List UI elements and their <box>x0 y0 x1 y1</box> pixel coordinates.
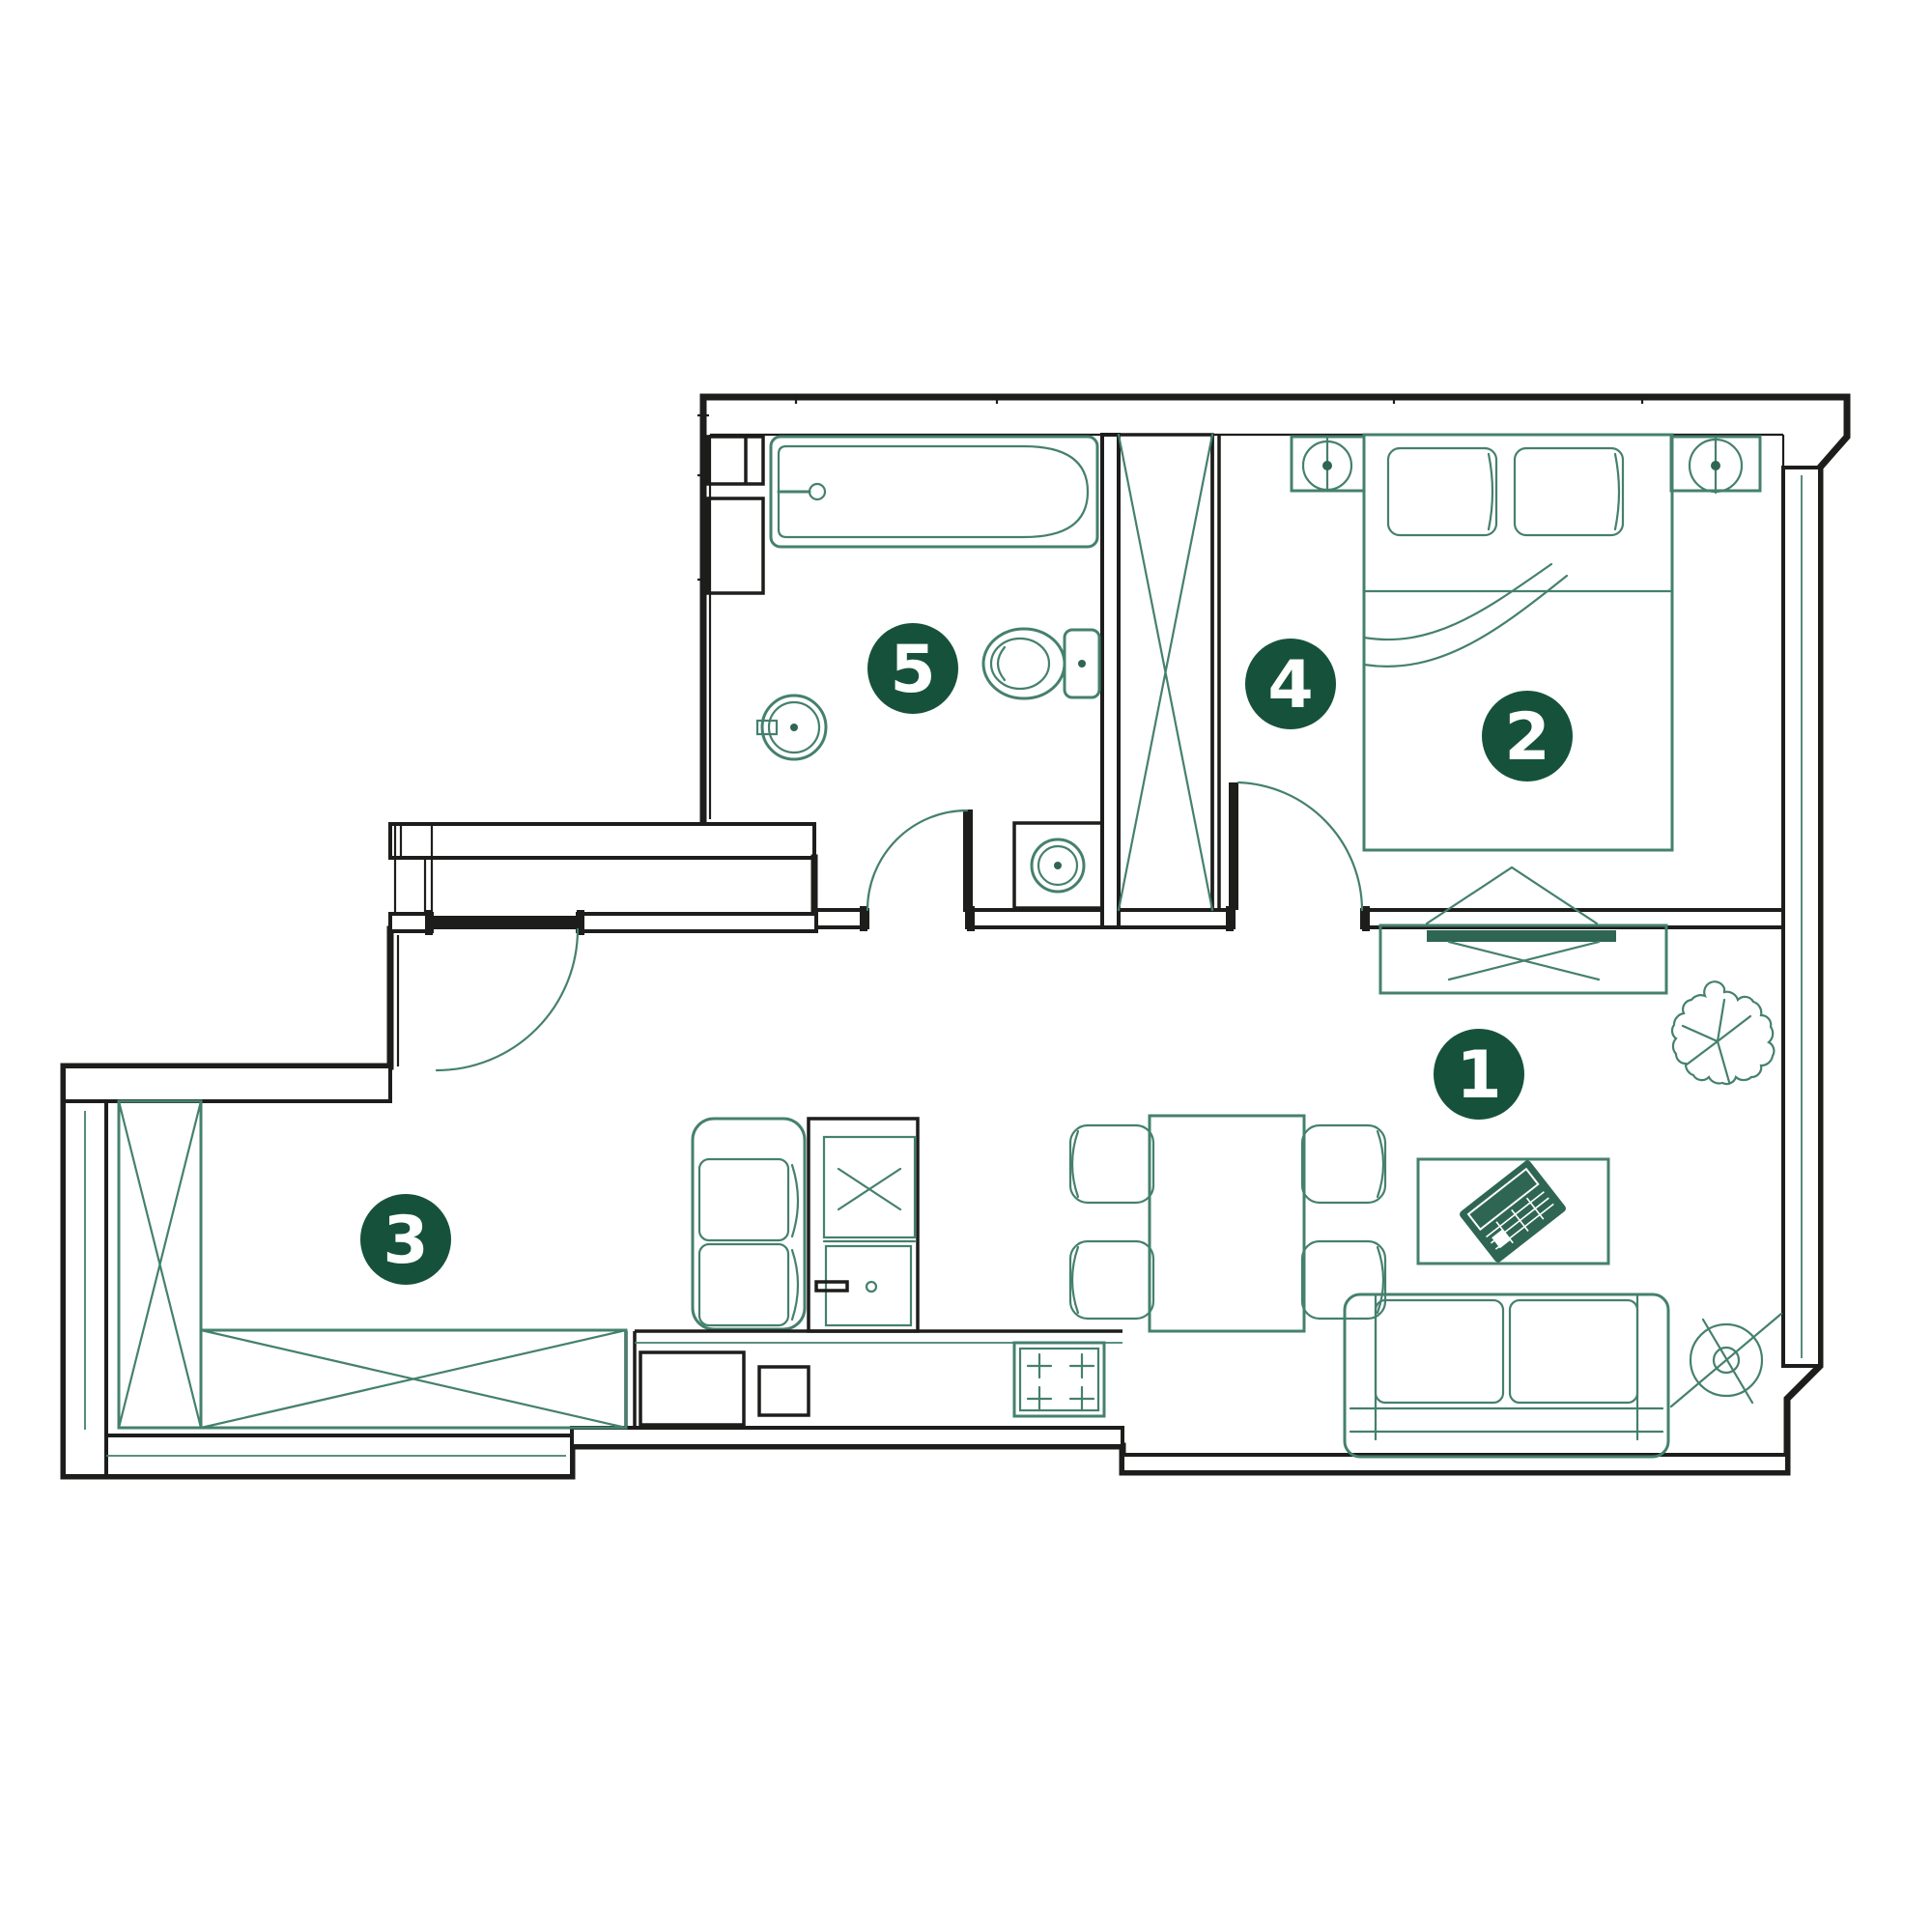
bathtub <box>771 437 1097 547</box>
tv <box>1427 930 1616 942</box>
bedroom-door-swing <box>1238 782 1362 910</box>
tv-stand <box>1380 925 1666 993</box>
bed <box>1364 435 1672 850</box>
floor-plan-page: 1 2 3 4 5 <box>0 0 1932 1932</box>
under-counter-appliance <box>640 1352 744 1425</box>
entry-door-swing <box>437 929 578 1070</box>
sofa <box>1345 1294 1668 1457</box>
room-marker-5: 5 <box>867 623 958 714</box>
bathroom-door-leaf <box>963 810 973 912</box>
hall-wardrobe-horizontal <box>201 1330 626 1428</box>
kitchen <box>635 1116 1385 1425</box>
dining-table <box>1150 1116 1304 1331</box>
room-marker-2: 2 <box>1482 691 1573 781</box>
laptop-icon <box>1458 1159 1567 1264</box>
stove <box>1014 1343 1104 1416</box>
bedroom-door <box>1226 782 1370 931</box>
living-room <box>1345 925 1781 1457</box>
dining-set <box>1070 1116 1385 1331</box>
washing-machine <box>1014 823 1102 908</box>
room-marker-5-label: 5 <box>890 632 935 708</box>
coffee-table <box>1418 1159 1608 1264</box>
built-in-wardrobe <box>1119 435 1212 910</box>
sink <box>757 696 826 759</box>
counter-cabinet <box>759 1367 809 1415</box>
hall-wardrobe-vertical <box>119 1101 201 1428</box>
kitchen-counter <box>635 1331 1122 1425</box>
fridge-door <box>826 1246 911 1325</box>
bedroom-door-leaf <box>1229 782 1238 910</box>
plant-icon <box>1672 981 1774 1084</box>
room-marker-1-label: 1 <box>1456 1037 1501 1114</box>
kitchen-bench <box>693 1119 805 1329</box>
wall-band-room3-top <box>64 1066 390 1101</box>
bathroom-cabinet <box>708 498 763 593</box>
pillow <box>1388 448 1496 535</box>
porch-parapet <box>390 824 814 858</box>
floor-plan: 1 2 3 4 5 <box>0 0 1932 1932</box>
nightstand-right <box>1671 437 1760 493</box>
room-marker-3: 3 <box>360 1194 451 1285</box>
room-marker-2-label: 2 <box>1504 699 1549 776</box>
chair <box>1070 1241 1153 1319</box>
room-marker-4-label: 4 <box>1267 647 1313 724</box>
wall-band-bottom-middle <box>572 1428 1122 1446</box>
toilet <box>983 629 1099 698</box>
chair <box>1070 1125 1153 1203</box>
bathroom-door <box>860 810 975 931</box>
nightstand-left <box>1292 437 1364 491</box>
bedroom <box>1292 435 1760 923</box>
wall-bathroom-partition <box>1102 435 1119 927</box>
room-marker-1: 1 <box>1434 1029 1524 1120</box>
fridge-handle <box>816 1282 847 1291</box>
fridge-column <box>809 1119 918 1331</box>
room-marker-4: 4 <box>1245 639 1336 729</box>
entry-door-leaf <box>433 916 578 929</box>
entry-door <box>425 910 584 1070</box>
pillow <box>1515 448 1623 535</box>
ceiling-light-icon <box>1671 1314 1781 1406</box>
chair <box>1302 1125 1385 1203</box>
bathroom-door-swing <box>867 810 967 910</box>
room-markers: 1 2 3 4 5 <box>360 623 1573 1285</box>
room-marker-3-label: 3 <box>383 1203 428 1279</box>
blanket-fold <box>1364 564 1567 667</box>
bathroom-shelf <box>708 437 763 484</box>
